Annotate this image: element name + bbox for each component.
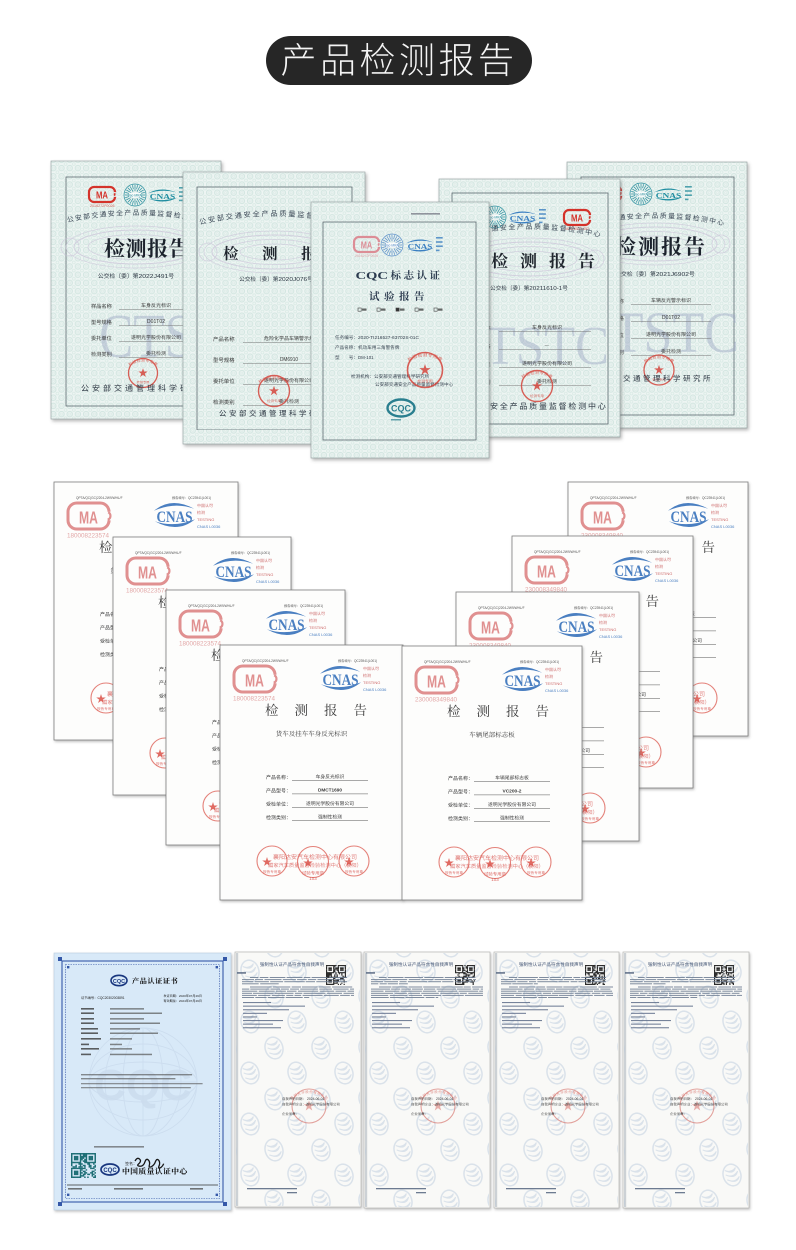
svg-text:TESTING: TESTING [655, 571, 672, 576]
svg-text:2020: 2020 [179, 994, 186, 998]
svg-text:160030021452: 160030021452 [565, 227, 589, 231]
svg-text:D01T02: D01T02 [662, 315, 680, 321]
svg-text:QC23941(L001): QC23941(L001) [536, 660, 559, 664]
svg-text:2024-06-01: 2024-06-01 [566, 1097, 583, 1101]
svg-text:MA: MA [593, 507, 612, 527]
svg-text:CNAS: CNAS [150, 192, 176, 201]
svg-text:CNAS: CNAS [215, 564, 251, 581]
svg-text:07: 07 [189, 994, 193, 998]
svg-text:MA: MA [537, 561, 556, 581]
svg-text:CNAS L0036: CNAS L0036 [309, 632, 333, 637]
svg-text:CNAS: CNAS [408, 242, 433, 251]
svg-text:CNAS L0036: CNAS L0036 [363, 687, 387, 692]
svg-text:ilac-MRA: ilac-MRA [488, 215, 502, 219]
svg-text:29: 29 [195, 994, 199, 998]
svg-text:CNAS L0036: CNAS L0036 [599, 634, 623, 639]
svg-text:MA: MA [361, 241, 373, 252]
svg-text:CNAS: CNAS [510, 214, 536, 223]
svg-text:2024-06-01: 2024-06-01 [695, 1097, 712, 1101]
svg-text:2024: 2024 [179, 999, 186, 1003]
svg-text:MA: MA [96, 191, 108, 202]
svg-text:2016272F0026: 2016272F0026 [355, 254, 378, 258]
svg-text:CNAS: CNAS [614, 563, 650, 580]
svg-text:D01T02: D01T02 [147, 319, 165, 325]
svg-text:CNAS: CNAS [656, 191, 682, 200]
svg-text:180008223574: 180008223574 [233, 696, 275, 703]
svg-text:2021J6902: 2021J6902 [656, 272, 689, 278]
svg-text:TESTING: TESTING [363, 680, 380, 685]
svg-text:CQC: CQC [113, 979, 125, 985]
svg-text:TESTING: TESTING [256, 572, 273, 577]
svg-text:QC23941(L001): QC23941(L001) [354, 659, 377, 663]
svg-text:103: 103 [309, 876, 317, 881]
svg-text:2020J076: 2020J076 [278, 277, 307, 283]
svg-text:QC23941(L001): QC23941(L001) [590, 606, 613, 610]
svg-text:CNAS L0036: CNAS L0036 [655, 578, 679, 583]
svg-text:TESTING: TESTING [309, 625, 326, 630]
svg-text:CQC: CQC [391, 404, 412, 414]
svg-text:CQC20302003891: CQC20302003891 [98, 996, 125, 1000]
svg-text:230008349840: 230008349840 [415, 697, 457, 704]
svg-text:QC23941(L001): QC23941(L001) [300, 604, 323, 608]
svg-text:TESTING: TESTING [545, 681, 562, 686]
svg-text:MA: MA [427, 671, 446, 691]
svg-text:DM-101: DM-101 [358, 355, 374, 360]
svg-text:2022J491: 2022J491 [138, 274, 168, 280]
svg-text:QPTA/QC(GC)2204-2W9/WHL/F: QPTA/QC(GC)2204-2W9/WHL/F [534, 550, 581, 554]
svg-text:DMCT1690: DMCT1690 [318, 788, 342, 794]
svg-text:MA: MA [191, 615, 210, 635]
svg-text:2024-06-01: 2024-06-01 [436, 1097, 453, 1101]
svg-text:DM6910: DM6910 [280, 357, 298, 363]
svg-text:2020-TI216527-63702S-01C: 2020-TI216527-63702S-01C [358, 335, 420, 340]
svg-text:180008223574: 180008223574 [126, 588, 168, 595]
svg-text:QC23941(L001): QC23941(L001) [702, 496, 725, 500]
svg-text:CNAS: CNAS [504, 673, 540, 690]
svg-text:ilac-MRA: ilac-MRA [385, 243, 399, 247]
svg-text:CNAS: CNAS [558, 619, 594, 636]
svg-text:QPTA/QC(GC)2204-2W9/WHL/F: QPTA/QC(GC)2204-2W9/WHL/F [188, 604, 235, 608]
svg-text:CNAS L0036: CNAS L0036 [197, 524, 221, 529]
svg-text:MA: MA [481, 617, 500, 637]
svg-text:CNAS: CNAS [670, 509, 706, 526]
svg-text:QPTA/QC(GC)2204-2W9/WHL/F: QPTA/QC(GC)2204-2W9/WHL/F [242, 659, 289, 663]
svg-text:180008223574: 180008223574 [179, 641, 221, 648]
svg-text:QPTA/QC(GC)2204-2W9/WHL/F: QPTA/QC(GC)2204-2W9/WHL/F [478, 606, 525, 610]
svg-text:CNAS: CNAS [156, 509, 192, 526]
svg-text:CQC: CQC [103, 1168, 117, 1174]
svg-text:QPTA/QC(GC)2204-2W9/WHL/F: QPTA/QC(GC)2204-2W9/WHL/F [590, 496, 637, 500]
svg-text:TESTING: TESTING [711, 517, 728, 522]
svg-text:QPTA/QC(GC)2204-2W9/WHL/F: QPTA/QC(GC)2204-2W9/WHL/F [135, 551, 182, 555]
svg-text:TESTING: TESTING [197, 517, 214, 522]
svg-text:QC23941(L001): QC23941(L001) [646, 550, 669, 554]
svg-text:CNAS: CNAS [322, 672, 358, 689]
svg-text:CQC: CQC [94, 1061, 192, 1110]
svg-text:QC23941(L001): QC23941(L001) [188, 496, 211, 500]
svg-text:MA: MA [79, 507, 98, 527]
svg-text:CNAS L0036: CNAS L0036 [545, 688, 569, 693]
svg-text:VC200-2: VC200-2 [503, 789, 522, 795]
svg-text:ilac-MRA: ilac-MRA [128, 193, 142, 197]
svg-text:MA: MA [571, 214, 583, 225]
svg-text:CQC: CQC [356, 271, 388, 282]
svg-text:MA: MA [138, 562, 157, 582]
svg-text:29: 29 [195, 999, 199, 1003]
svg-text:103: 103 [491, 877, 499, 882]
svg-text:CNAS: CNAS [268, 617, 304, 634]
svg-text:TESTING: TESTING [599, 627, 616, 632]
svg-text:20211610-1: 20211610-1 [529, 286, 562, 292]
svg-text:ilac-MRA: ilac-MRA [634, 192, 648, 196]
svg-text:QC23941(L001): QC23941(L001) [247, 551, 270, 555]
svg-text:2024-06-01: 2024-06-01 [307, 1097, 324, 1101]
svg-text:QPTA/QC(GC)2204-2W9/WHL/F: QPTA/QC(GC)2204-2W9/WHL/F [76, 496, 123, 500]
svg-text:MA: MA [245, 670, 264, 690]
svg-text:QPTA/QC(GC)2204-2W9/WHL/F: QPTA/QC(GC)2204-2W9/WHL/F [424, 660, 471, 664]
svg-text:180008223574: 180008223574 [67, 533, 109, 540]
svg-text:CNAS L0036: CNAS L0036 [711, 524, 735, 529]
svg-text:07: 07 [189, 999, 193, 1003]
svg-text:2016272F0026: 2016272F0026 [90, 204, 115, 208]
svg-text:CNAS L0036: CNAS L0036 [256, 579, 280, 584]
